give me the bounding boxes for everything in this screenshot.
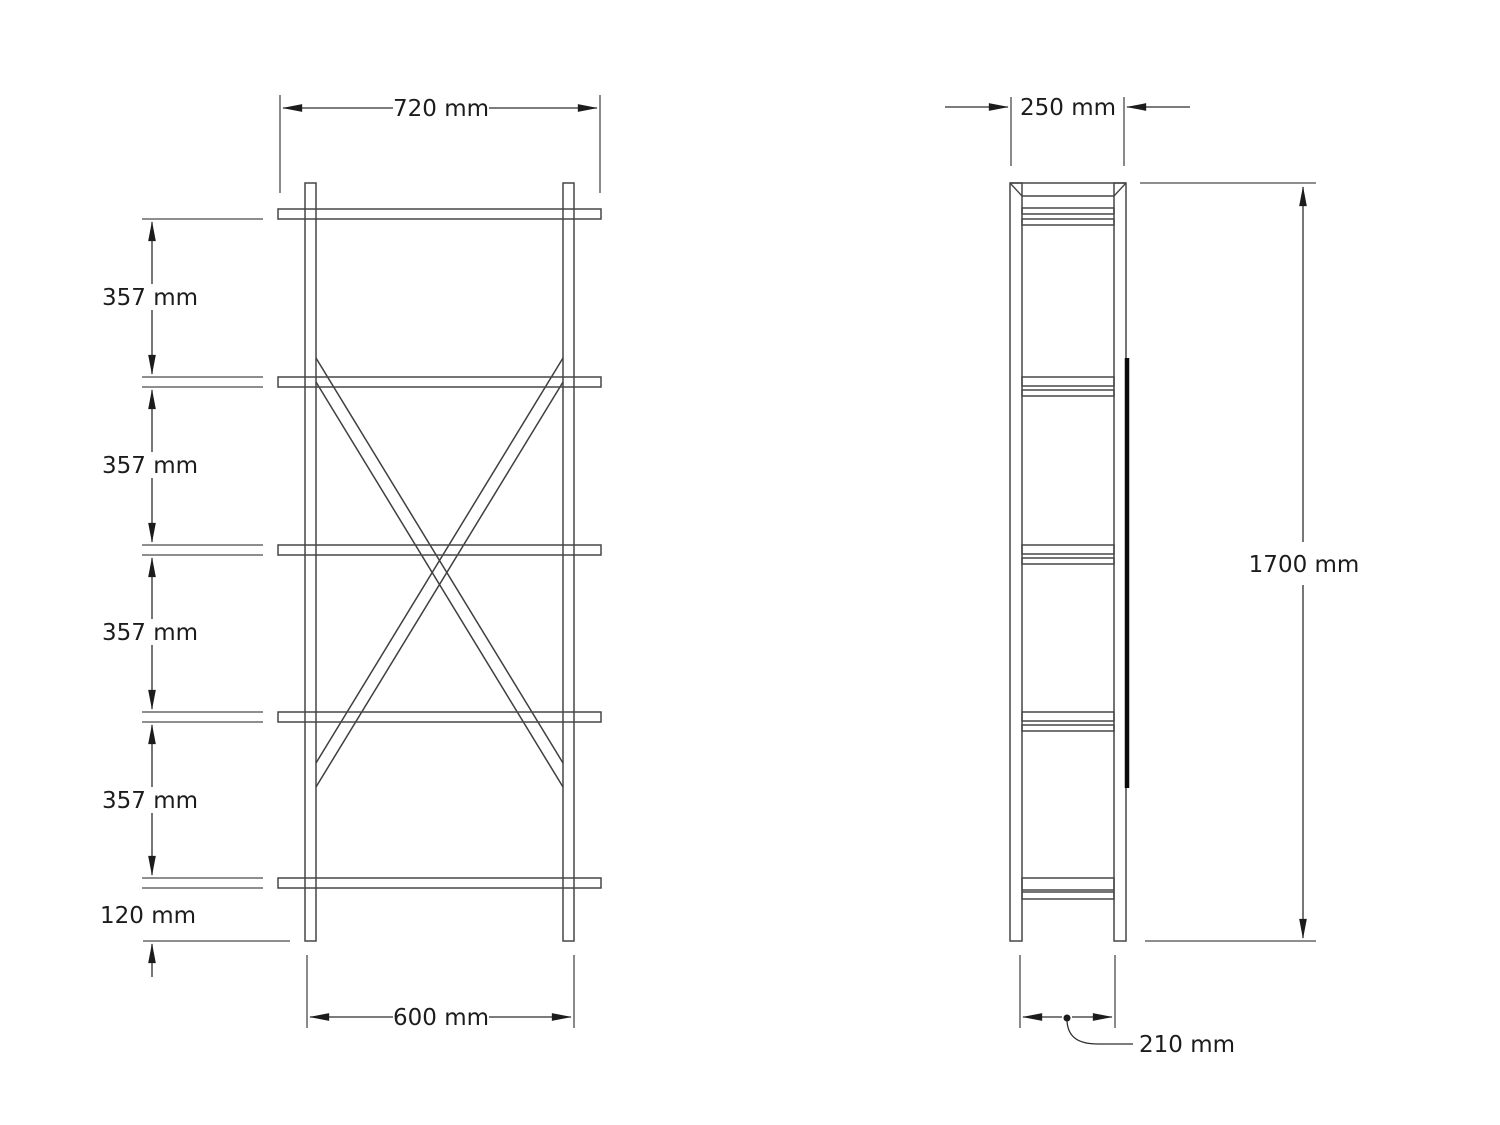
front-view-drawing (278, 183, 601, 941)
front-shelves (278, 209, 601, 888)
dimension-side-top-width: 250 mm (945, 95, 1190, 166)
dim-label-210: 210 mm (1139, 1032, 1235, 1058)
side-shelf-2-rail (1022, 390, 1114, 396)
front-shelf-4 (278, 712, 601, 722)
side-shelf-4 (1022, 712, 1114, 721)
dim-label-250: 250 mm (1020, 95, 1116, 121)
front-shelf-2 (278, 377, 601, 387)
dim-label-357-1: 357 mm (102, 285, 198, 311)
leader-curve (1067, 1021, 1133, 1044)
dimension-overall-height: 1700 mm (1140, 183, 1359, 941)
dimension-side-bottom-depth: 210 mm (1020, 955, 1235, 1058)
dimension-front-bottom-width: 600 mm (307, 955, 574, 1031)
dimension-front-top-width: 720 mm (280, 95, 600, 193)
dim-label-120: 120 mm (100, 903, 196, 929)
side-front-leg (1010, 183, 1022, 941)
side-back-leg (1114, 183, 1126, 941)
side-top-cap (1010, 183, 1126, 196)
front-shelf-1 (278, 209, 601, 219)
technical-drawing-page: 720 mm 357 mm 357 mm 357 mm 357 mm 120 m… (0, 0, 1500, 1125)
side-shelf-2 (1022, 377, 1114, 386)
side-top-rail-1 (1022, 208, 1114, 214)
side-top-rail-2 (1022, 219, 1114, 225)
dim-label-357-2: 357 mm (102, 453, 198, 479)
side-shelf-5-rail (1022, 892, 1114, 899)
dim-label-1700: 1700 mm (1249, 552, 1360, 578)
front-shelf-3 (278, 545, 601, 555)
dim-label-357-4: 357 mm (102, 788, 198, 814)
leader-dot (1064, 1015, 1071, 1022)
side-shelf-4-rail (1022, 725, 1114, 731)
side-view-drawing (1010, 183, 1127, 941)
dim-label-357-3: 357 mm (102, 620, 198, 646)
side-shelf-5 (1022, 878, 1114, 890)
dim-label-720: 720 mm (393, 96, 489, 122)
front-shelf-5 (278, 878, 601, 888)
side-shelf-3 (1022, 545, 1114, 554)
dimension-shelf-spacing-chain: 357 mm 357 mm 357 mm 357 mm 120 mm (100, 219, 290, 977)
front-left-leg (305, 183, 316, 941)
side-shelves (1022, 377, 1114, 899)
dim-label-600: 600 mm (393, 1005, 489, 1031)
front-right-leg (563, 183, 574, 941)
side-shelf-3-rail (1022, 558, 1114, 564)
drawing-svg: 720 mm 357 mm 357 mm 357 mm 357 mm 120 m… (0, 0, 1500, 1125)
